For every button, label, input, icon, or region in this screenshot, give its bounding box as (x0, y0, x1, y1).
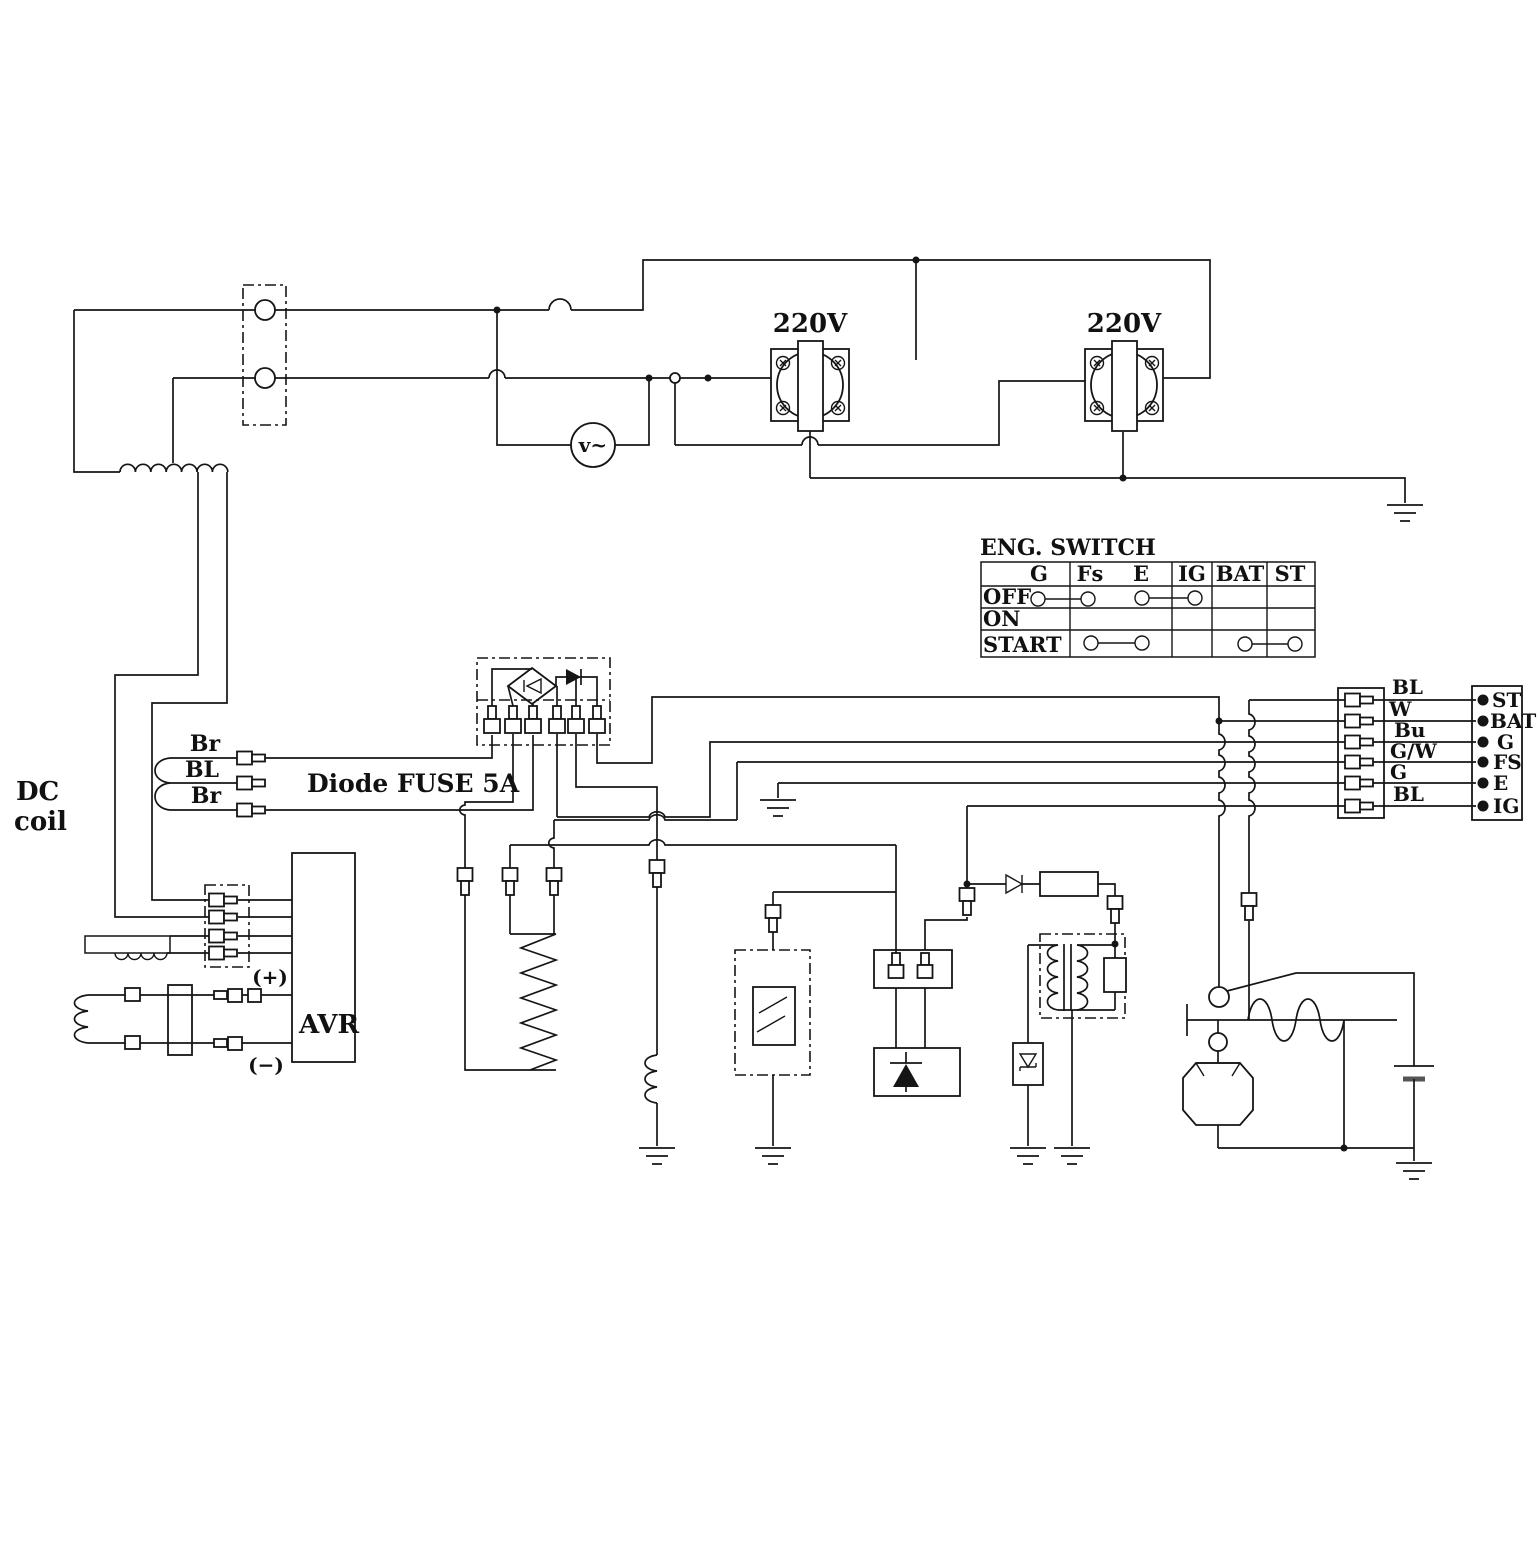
circuit-breaker-symbol (549, 299, 571, 310)
col-e: E (1133, 561, 1149, 586)
outlet-right-voltage-label: 220V (1087, 309, 1162, 339)
switch-connection-off-g-fs (1031, 592, 1095, 606)
generator-wiring-schematic: v~ 220V 220V ENG. SWITCH G Fs E IG (0, 0, 1540, 1541)
col-bat: BAT (1216, 561, 1265, 586)
col-fs: Fs (1077, 561, 1104, 586)
wire-label-bl: BL (185, 757, 219, 783)
dc-coil-section: DC coil Br BL Br Diode FUSE 5A (14, 731, 533, 837)
exciter-winding (85, 936, 209, 960)
harness-connector: BL W Bu G/W G BL (1338, 675, 1476, 818)
switch-connection-off-e-ig (1135, 591, 1202, 605)
open-contact-circle (670, 373, 680, 383)
col-st: ST (1275, 561, 1306, 586)
diode-icon (524, 679, 541, 693)
top-ac-wiring (74, 257, 1423, 522)
ground-symbol (1054, 1148, 1090, 1164)
voltmeter: v~ (571, 423, 615, 467)
pickup-coil (639, 1055, 675, 1164)
ground-symbol (755, 1148, 791, 1164)
wire-label-br-bottom: Br (191, 783, 222, 809)
zener-unit (1010, 1043, 1046, 1164)
eng-switch-title: ENG. SWITCH (980, 535, 1156, 561)
col-g: G (1030, 561, 1048, 586)
rectifier-fuse-block (477, 658, 610, 745)
zener-diode-icon (1020, 1054, 1036, 1071)
wiring-diagram-page: v~ 220V 220V ENG. SWITCH G Fs E IG (0, 0, 1540, 1541)
dc-coil-label-1: DC (16, 777, 59, 807)
terminal-ig: IG (1493, 794, 1519, 818)
ground-symbol (1387, 505, 1423, 521)
dc-coil-label-2: coil (14, 807, 67, 837)
field-coil-circuit: (+) (−) (75, 965, 293, 1077)
starter-motor (1183, 1020, 1414, 1148)
wire-label-bl-ig: BL (1393, 782, 1424, 806)
terminal-e: E (1493, 771, 1508, 795)
harness-wiring (458, 697, 1346, 1070)
switch-connection-start-bat-st (1238, 637, 1302, 651)
row-start: START (983, 632, 1062, 657)
resistor-box (1040, 872, 1098, 896)
row-on: ON (983, 606, 1021, 631)
wire-label-bl-st: BL (1392, 675, 1423, 699)
scr-triangle-icon (893, 1064, 919, 1087)
bridge-rectifier-diamond (508, 668, 556, 704)
avr-section: AVR (+) (−) (75, 853, 360, 1077)
outlet-220v-left: 220V (771, 309, 849, 431)
col-ig: IG (1178, 561, 1206, 586)
generator-stator-winding (115, 464, 228, 917)
ignition-charge-chain (967, 872, 1123, 948)
avr-positive-label: (+) (252, 965, 288, 989)
diode-icon (566, 669, 581, 685)
outlet-220v-right: 220V (1085, 309, 1163, 431)
stator-output-connector (243, 285, 286, 425)
load-resistor (521, 934, 556, 1070)
avr-negative-label: (−) (248, 1053, 284, 1077)
diode-icon (1006, 875, 1022, 893)
switch-connection-start-fs-e (1084, 636, 1149, 650)
avr-label: AVR (298, 1010, 359, 1040)
ground-symbol (760, 800, 796, 816)
wire-label-br-top: Br (190, 731, 221, 757)
wire-label-g: G (1390, 760, 1407, 784)
voltmeter-label: v~ (578, 433, 607, 457)
eng-switch-table: ENG. SWITCH G Fs E IG BAT ST OFF ON STAR… (980, 535, 1315, 657)
engine-terminal-block: ST BAT G FS E IG (1472, 686, 1536, 820)
ground-symbol (639, 1148, 675, 1164)
battery (1394, 1066, 1434, 1179)
oil-level-sensor (735, 892, 810, 1164)
ignition-unit (874, 950, 960, 1096)
resistor-box (1104, 958, 1126, 992)
ground-symbol (1010, 1148, 1046, 1164)
outlet-left-voltage-label: 220V (773, 309, 848, 339)
ground-symbol (1396, 1163, 1432, 1179)
diode-fuse-note: Diode FUSE 5A (307, 769, 520, 798)
